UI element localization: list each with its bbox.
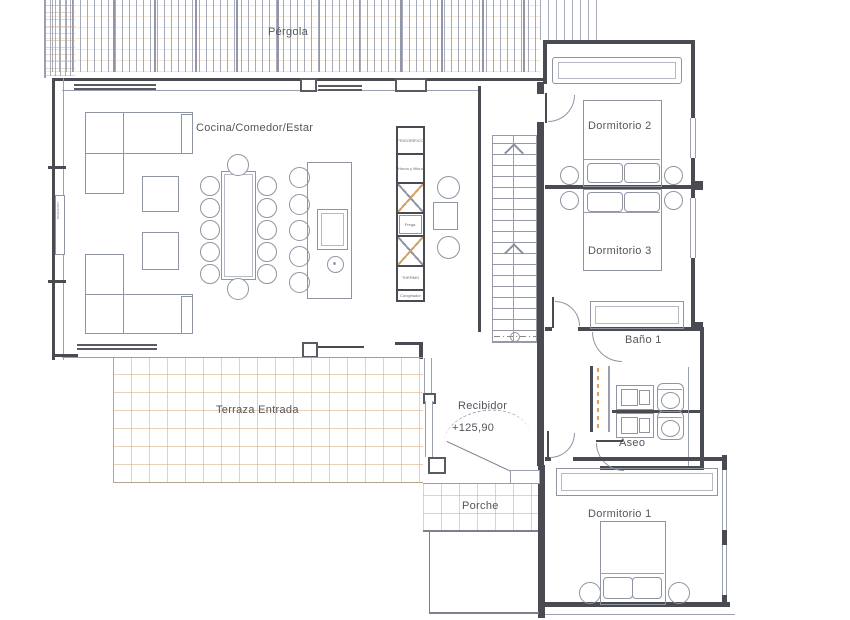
dorm1-nightstand xyxy=(668,582,690,604)
dorm3-nightstand xyxy=(664,191,683,210)
recibidor-side-window xyxy=(425,401,433,457)
terraza-bottom-edge xyxy=(113,482,423,483)
dorm3-nightstand xyxy=(560,191,579,210)
counter-stool xyxy=(437,236,460,259)
dorm3-wardrobe-inner xyxy=(595,306,679,324)
dorm1-bed-line xyxy=(600,573,664,574)
side-table-2 xyxy=(142,232,179,270)
north-pillar-kitchen xyxy=(395,78,427,92)
sofa-top-armrest xyxy=(181,114,193,154)
sliding-door-leaf xyxy=(318,346,364,348)
dorm3-bed-line xyxy=(583,212,660,213)
dorm3-pillow xyxy=(587,192,623,212)
dining-chair-foot xyxy=(227,278,249,300)
dining-chair xyxy=(200,176,220,196)
kitchen-appliance-column: FRIGORÍFICO Horno y Micro Frega. THERMO … xyxy=(396,126,425,302)
terraza-label: Terraza Entrada xyxy=(216,404,299,416)
north-window-1 xyxy=(74,84,156,90)
dormitorio1-label: Dormitorio 1 xyxy=(588,508,652,520)
bano1-soap xyxy=(639,390,650,405)
pergola-left-grid xyxy=(45,0,75,76)
dining-chair xyxy=(200,264,220,284)
hall-bath-wall-a xyxy=(590,366,593,432)
bano1-door-leaf xyxy=(592,329,622,331)
hall-door-leaf xyxy=(545,93,547,123)
counter-stool xyxy=(437,176,460,199)
dorm-block-left-stub xyxy=(543,40,547,84)
west-window-tag: corredera xyxy=(56,202,60,219)
dining-chair xyxy=(200,198,220,218)
stair-wall-lower xyxy=(537,346,544,466)
appliance-cell-freezer: Congelador xyxy=(398,289,423,300)
aseo-door-leaf xyxy=(596,440,623,442)
staircase xyxy=(492,135,537,343)
dorm1-wardrobe-inner xyxy=(561,473,713,491)
bano1-door-arc xyxy=(592,332,622,362)
entry-door-post xyxy=(428,457,446,474)
west-wall-tick-1 xyxy=(48,166,66,169)
appliance-cell-fridge: FRIGORÍFICO xyxy=(398,128,423,153)
aseo-toilet-tank-line xyxy=(657,417,682,418)
dining-table-inner xyxy=(224,174,253,277)
pergola-label: Pérgola xyxy=(268,26,308,38)
dorm3-window xyxy=(690,198,696,258)
stairs-start-circle xyxy=(510,332,520,342)
dorm1-window-1 xyxy=(722,470,727,530)
dorm2-nightstand xyxy=(560,166,579,185)
right-wall-stub-1 xyxy=(693,181,703,190)
aseo-soap xyxy=(639,418,650,433)
pergola-extension xyxy=(540,0,598,40)
west-wall-tick-2 xyxy=(48,280,66,283)
sofa-top-arm xyxy=(85,112,124,194)
island-sink-basin xyxy=(321,213,344,246)
dorm-block-top-wall xyxy=(545,40,695,44)
dining-chair-head xyxy=(227,154,249,176)
recibidor-side-window-upper xyxy=(424,358,432,394)
bath-top-stub xyxy=(695,327,704,331)
living-east-wall xyxy=(478,86,481,332)
aseo-toilet-bowl xyxy=(661,420,680,437)
below-porche-bottom-line xyxy=(429,612,539,614)
appliance-cell-oven: Horno y Micro xyxy=(398,153,423,182)
stair-wall-main xyxy=(537,122,544,346)
terraza-left-edge xyxy=(113,358,114,483)
south-pillar xyxy=(302,342,318,358)
island-hob-dot xyxy=(333,262,336,265)
appliance-cell-cross xyxy=(398,182,423,212)
appliance-cell-cross xyxy=(398,235,423,265)
appliance-cell-sink: Frega. xyxy=(398,212,423,235)
north-window-2 xyxy=(318,85,362,91)
dorm2-nightstand xyxy=(664,166,683,185)
kitchen-counter xyxy=(433,202,458,230)
aseo-basin xyxy=(621,417,638,434)
dorm2-wardrobe-inner xyxy=(558,62,676,79)
dorm1-pillow xyxy=(632,577,662,599)
bano1-basin xyxy=(621,389,638,406)
dorm3-pillow xyxy=(624,192,660,212)
dorm2-window xyxy=(690,118,696,158)
below-porche-left-line xyxy=(429,532,430,612)
dining-chair xyxy=(200,220,220,240)
dorm1-door-leaf xyxy=(547,431,549,459)
dorm1-pillow xyxy=(603,577,633,599)
pergola-left-edge xyxy=(44,0,46,78)
dorm1-top-wall xyxy=(573,457,722,461)
entry-door-arc xyxy=(440,404,533,472)
bano1-toilet-bowl xyxy=(661,392,680,409)
dining-chair xyxy=(257,242,277,262)
dorm1-window-2 xyxy=(722,545,727,595)
dining-chair xyxy=(257,198,277,218)
dorm3-door-leaf xyxy=(552,297,554,328)
hall-bath-wall-b xyxy=(608,366,610,432)
dorm3-bottom-stub xyxy=(545,327,552,331)
staircase-center-line xyxy=(513,135,514,343)
dining-chair xyxy=(200,242,220,262)
appliance-cell-thermo: THERMO xyxy=(398,265,423,289)
hall-door-arc xyxy=(548,95,575,122)
entry-threshold-step xyxy=(510,470,540,484)
porche-bottom-line xyxy=(423,530,538,532)
sofa-bottom-armrest xyxy=(181,296,193,334)
dorm1-door-arc xyxy=(550,433,575,458)
terraza-floor-grid xyxy=(113,358,423,483)
south-window xyxy=(77,344,157,350)
sofa-bottom-arm xyxy=(85,254,124,334)
hall-accent-dash-line xyxy=(597,368,599,428)
dorm1-nightstand xyxy=(579,582,601,604)
living-label: Cocina/Comedor/Estar xyxy=(196,122,313,134)
dorm2-pillow xyxy=(624,163,660,183)
side-table-1 xyxy=(142,176,179,212)
bano1-label: Baño 1 xyxy=(625,334,662,346)
north-pillar xyxy=(300,78,317,92)
porche-label: Porche xyxy=(462,500,499,512)
bano1-toilet-tank-line xyxy=(657,389,682,390)
dining-chair xyxy=(257,264,277,284)
dorm3-door-arc xyxy=(555,301,580,326)
ground-line xyxy=(545,614,735,615)
north-wall xyxy=(52,78,546,81)
dining-chair xyxy=(257,176,277,196)
dorm1-left-wall xyxy=(538,465,545,618)
floor-plan: Pérgola corredera Cocina/Comedor/Estar xyxy=(0,0,850,620)
dorm2-bed-line xyxy=(583,159,660,160)
bath-right-wall xyxy=(700,331,704,467)
dining-chair xyxy=(257,220,277,240)
shower-screen-line xyxy=(688,367,689,466)
dorm2-pillow xyxy=(587,163,623,183)
